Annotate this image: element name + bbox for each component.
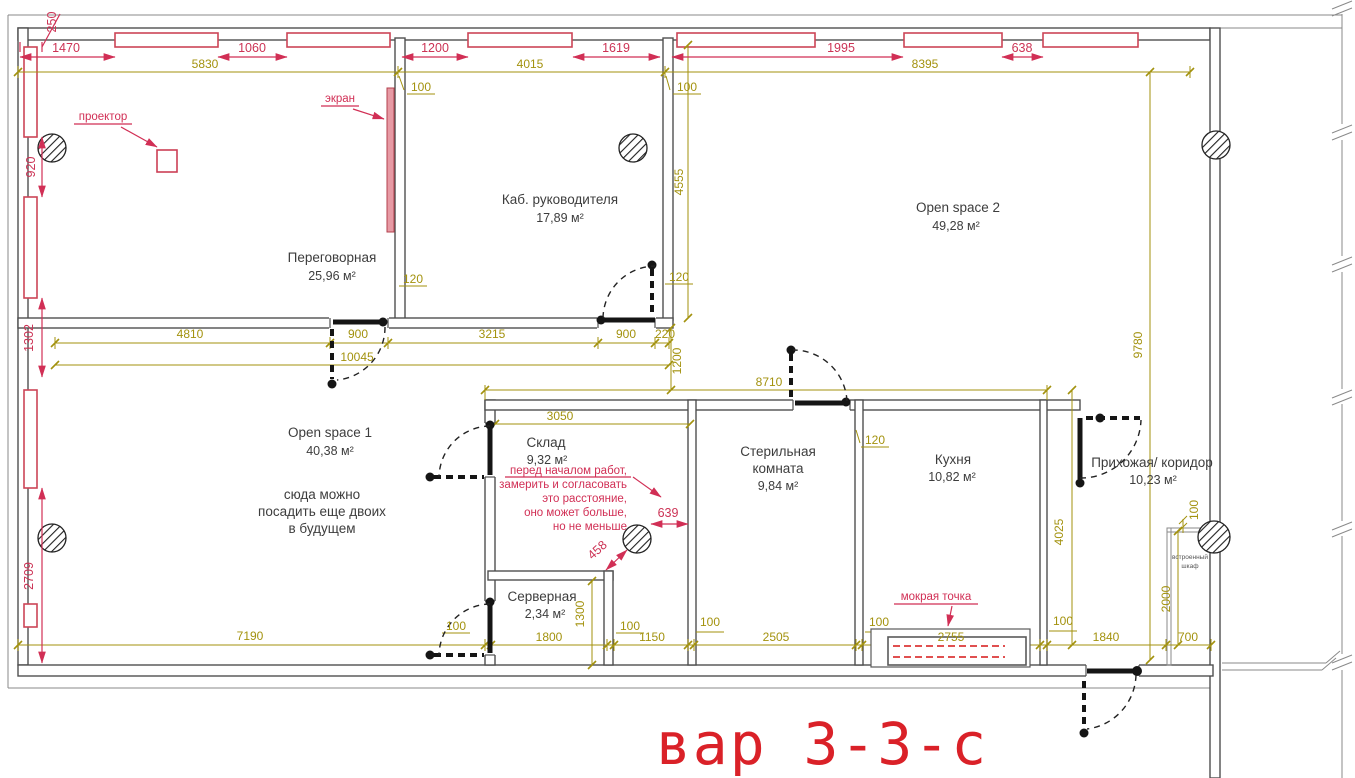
- dim-100d: 100: [869, 615, 889, 629]
- dim-1302: 1302: [22, 324, 36, 352]
- room-area-office: 17,89 м²: [536, 211, 584, 225]
- room-area-sterile: 9,84 м²: [758, 479, 799, 493]
- dim-638: 638: [1012, 41, 1033, 55]
- measure-note-3: это расстояние,: [542, 493, 627, 505]
- thk-100a: 100: [411, 80, 431, 94]
- measure-note-4: оно может больше,: [524, 507, 627, 519]
- openspace-note-2: посадить еще двоих: [258, 504, 386, 519]
- room-name-sterile-1: Стерильная: [740, 444, 816, 459]
- dim-1800: 1800: [536, 630, 563, 644]
- wet-point-label: мокрая точка: [901, 591, 972, 603]
- room-name-openspace2: Open space 2: [916, 200, 1000, 215]
- floor-plan-page: 5830 4015 8395 1470 1060 1200 1619 1995 …: [0, 0, 1355, 778]
- dim-8710: 8710: [756, 375, 783, 389]
- dim-3215: 3215: [479, 327, 506, 341]
- dim-9780: 9780: [1131, 331, 1145, 358]
- dim-3050: 3050: [547, 409, 574, 423]
- dim-1150: 1150: [639, 630, 665, 644]
- closet-label-2: шкаф: [1181, 563, 1199, 570]
- room-name-meeting: Переговорная: [288, 250, 377, 265]
- dim-4015: 4015: [517, 57, 544, 71]
- dim-5830: 5830: [192, 57, 219, 71]
- columns: [38, 131, 1230, 553]
- room-area-kitchen: 10,82 м²: [928, 470, 976, 484]
- floor-plan-drawing: 5830 4015 8395 1470 1060 1200 1619 1995 …: [0, 0, 1355, 778]
- room-area-openspace1: 40,38 м²: [306, 444, 354, 458]
- screen-label: экран: [325, 93, 355, 105]
- projector-symbol: [157, 150, 177, 172]
- room-area-hallway: 10,23 м²: [1129, 473, 1177, 487]
- dim-2000: 2000: [1159, 585, 1173, 612]
- dim-1470: 1470: [52, 41, 80, 55]
- dim-920: 920: [24, 157, 38, 178]
- dim-100a: 100: [446, 619, 466, 633]
- dim-2709: 2709: [22, 562, 36, 590]
- variant-title: вар 3-3-с: [656, 710, 988, 778]
- dim-700: 700: [1178, 630, 1198, 644]
- dim-10045: 10045: [340, 350, 374, 364]
- room-name-storage: Склад: [526, 435, 565, 450]
- screen-symbol: [387, 88, 394, 232]
- dim-1200v: 1200: [670, 347, 684, 374]
- dim-7190: 7190: [237, 629, 264, 643]
- dim-1995: 1995: [827, 41, 855, 55]
- room-area-openspace2: 49,28 м²: [932, 219, 980, 233]
- thk-100b: 100: [677, 80, 697, 94]
- walls: [18, 28, 1220, 778]
- dim-100b: 100: [620, 619, 640, 633]
- dim-1200-win: 1200: [421, 41, 449, 55]
- room-name-openspace1: Open space 1: [288, 425, 372, 440]
- thk-120c: 120: [865, 433, 885, 447]
- dim-4555: 4555: [672, 168, 686, 195]
- dim-900b: 900: [616, 327, 636, 341]
- measure-note-1: перед началом работ,: [510, 465, 627, 477]
- thk-100-closet: 100: [1187, 500, 1201, 520]
- dim-100e: 100: [1053, 614, 1073, 628]
- room-area-meeting: 25,96 м²: [308, 269, 356, 283]
- measure-note-2: замерить и согласовать: [499, 479, 627, 491]
- dim-639: 639: [658, 506, 679, 520]
- dim-100c: 100: [700, 615, 720, 629]
- dim-2505: 2505: [763, 630, 790, 644]
- projector-label: проектор: [79, 111, 128, 123]
- dim-1300: 1300: [573, 600, 587, 627]
- dim-4810: 4810: [177, 327, 204, 341]
- dim-900a: 900: [348, 327, 368, 341]
- dim-2755: 2755: [938, 630, 965, 644]
- room-area-server: 2,34 м²: [525, 607, 566, 621]
- thk-120b: 120: [669, 270, 689, 284]
- dim-4025: 4025: [1052, 518, 1066, 545]
- dim-1840: 1840: [1093, 630, 1120, 644]
- dim-1619: 1619: [602, 41, 630, 55]
- dim-8395: 8395: [912, 57, 939, 71]
- thk-120a: 120: [403, 272, 423, 286]
- room-name-server: Серверная: [507, 589, 576, 604]
- openspace-note-3: в будущем: [288, 521, 355, 536]
- room-name-sterile-2: комната: [752, 461, 804, 476]
- dim-220: 220: [655, 327, 675, 341]
- red-dimensions: [20, 14, 1043, 663]
- room-name-hallway: Прихожая/ коридор: [1091, 455, 1213, 470]
- openspace-note-1: сюда можно: [284, 487, 360, 502]
- dim-458: 458: [585, 538, 610, 562]
- room-name-office: Каб. руководителя: [502, 192, 618, 207]
- dim-250: 250: [45, 12, 59, 33]
- closet-label-1: встроенный: [1172, 553, 1208, 561]
- room-name-kitchen: Кухня: [935, 452, 971, 467]
- measure-note-5: но не меньше: [553, 521, 627, 533]
- olive-dimensions: [14, 41, 1215, 669]
- dim-1060: 1060: [238, 41, 266, 55]
